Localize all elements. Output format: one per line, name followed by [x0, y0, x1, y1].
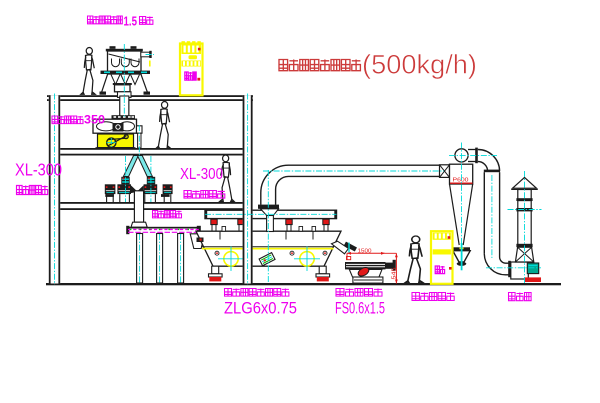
svg-text:350: 350	[84, 113, 105, 127]
svg-text:XL-300: XL-300	[15, 160, 62, 180]
svg-text:545: 545	[391, 268, 397, 280]
svg-text:FS0.6x1.5: FS0.6x1.5	[335, 300, 385, 318]
svg-text:(500kg/h): (500kg/h)	[362, 50, 477, 80]
svg-text:1.5: 1.5	[124, 15, 138, 29]
svg-text:ZLG6x0.75: ZLG6x0.75	[224, 300, 297, 318]
svg-text:1500: 1500	[358, 249, 372, 255]
svg-text:XL-300: XL-300	[180, 166, 223, 183]
